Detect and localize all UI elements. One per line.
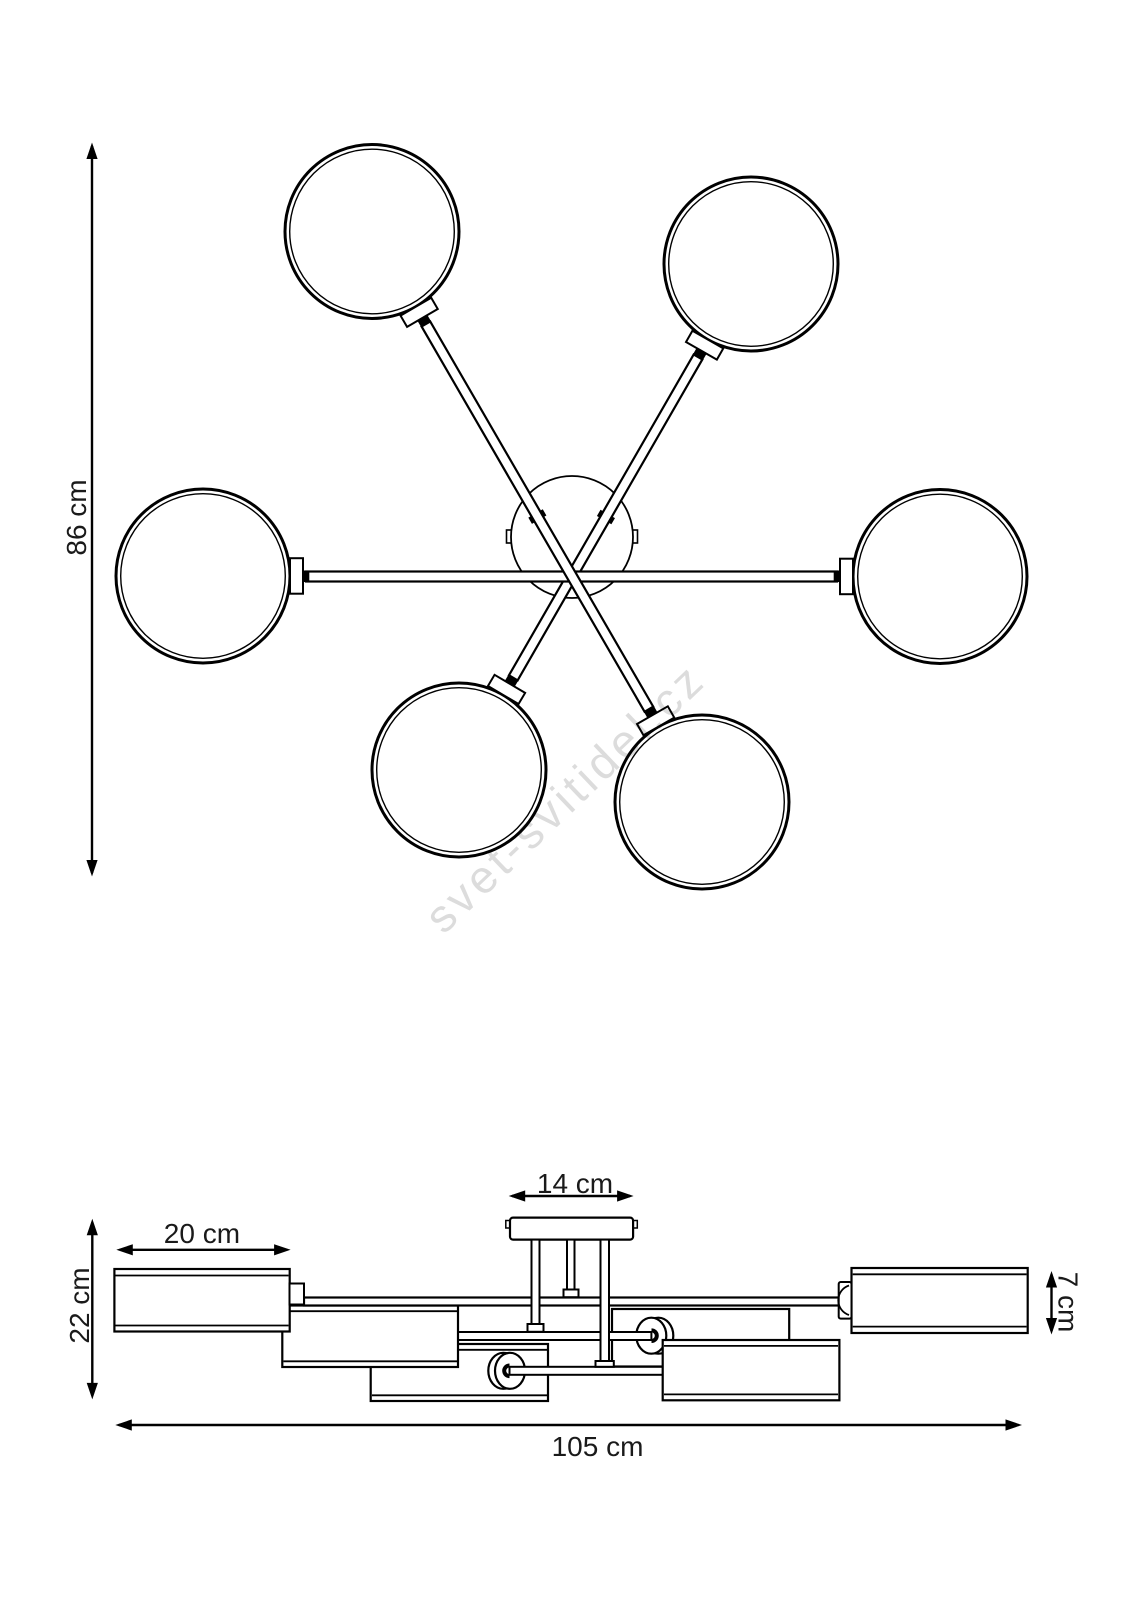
svg-text:7 cm: 7 cm <box>1053 1272 1084 1333</box>
svg-text:86 cm: 86 cm <box>61 479 92 555</box>
svg-text:20 cm: 20 cm <box>164 1218 240 1249</box>
svg-text:105 cm: 105 cm <box>552 1431 644 1462</box>
svg-text:22 cm: 22 cm <box>64 1267 95 1343</box>
svg-text:14 cm: 14 cm <box>537 1168 613 1199</box>
